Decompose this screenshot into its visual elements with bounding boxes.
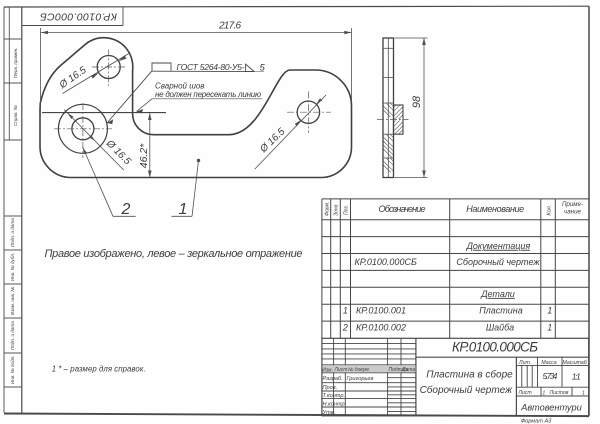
svg-text:Подп. и дата: Подп. и дата [10,218,15,247]
svg-text:Зона: Зона [334,204,340,216]
svg-text:Взам. инв. №: Взам. инв. № [10,287,15,315]
svg-text:1 * – размер для справок.: 1 * – размер для справок. [52,364,146,373]
svg-text:КР.0100.000СБ: КР.0100.000СБ [40,11,117,23]
svg-text:1:1: 1:1 [572,372,581,382]
svg-text:ГОСТ 5264-80-У5-: ГОСТ 5264-80-У5- [177,62,245,72]
svg-text:КР.0100.000СБ: КР.0100.000СБ [452,339,538,354]
svg-text:Справ. №: Справ. № [13,105,18,126]
svg-text:Приме-: Приме- [562,201,583,208]
svg-text:Пластина в сборе: Пластина в сборе [426,369,513,381]
svg-text:Инв. № дубл.: Инв. № дубл. [10,253,15,281]
svg-text:98: 98 [411,95,423,108]
svg-text:Сборочный чертеж: Сборочный чертеж [456,257,540,267]
svg-text:Н.контр.: Н.контр. [323,402,347,408]
svg-text:Правое изображено, левое – зер: Правое изображено, левое – зеркальное от… [45,248,303,260]
svg-text:2: 2 [342,323,348,333]
svg-text:Лист: Лист [334,367,348,373]
svg-text:5: 5 [260,63,266,74]
svg-text:Детали: Детали [480,289,515,299]
svg-text:КР.0100.000СБ: КР.0100.000СБ [355,257,417,267]
svg-text:Т.контр.: Т.контр. [323,393,346,399]
svg-text:1: 1 [547,323,552,333]
svg-text:1: 1 [179,201,188,218]
svg-text:не должен пересекать линию: не должен пересекать линию [155,90,261,99]
svg-text:1: 1 [542,390,545,396]
svg-text:Листов: Листов [549,390,569,396]
svg-text:Перв. примен.: Перв. примен. [13,47,18,78]
svg-text:КР.0100.001: КР.0100.001 [356,306,406,316]
svg-text:Масса: Масса [541,360,556,366]
svg-text:Пластина: Пластина [479,306,523,316]
svg-text:Пров.: Пров. [323,385,338,391]
svg-text:Лист: Лист [517,390,532,396]
svg-text:Подп. и дата: Подп. и дата [10,321,15,350]
svg-text:Дата: Дата [401,367,415,373]
svg-text:Кол.: Кол. [547,205,553,216]
svg-text:чание: чание [564,209,581,216]
svg-text:Изм.: Изм. [322,367,333,373]
svg-text:Лит.: Лит. [518,360,531,366]
svg-text:1: 1 [343,306,348,316]
svg-text:Документация: Документация [466,241,531,251]
svg-text:Шайба: Шайба [486,323,514,333]
svg-text:217.6: 217.6 [218,21,241,32]
svg-text:Поз.: Поз. [344,205,350,215]
svg-text:2: 2 [121,201,131,218]
svg-text:Форм.: Форм. [324,202,330,216]
svg-text:Григорьев: Григорьев [347,376,374,382]
svg-text:Разраб.: Разраб. [323,376,343,382]
svg-text:Сборочный чертеж: Сборочный чертеж [420,384,514,396]
svg-text:Утв.: Утв. [322,410,336,416]
svg-text:Масштаб: Масштаб [562,360,587,366]
svg-text:Обозначение: Обозначение [379,204,426,214]
svg-text:46.2*: 46.2* [138,143,150,168]
svg-text:Автовентури: Автовентури [520,403,582,413]
svg-text:Инв. № подл.: Инв. № подл. [10,355,15,384]
svg-text:5.734: 5.734 [543,371,558,381]
svg-text:1: 1 [582,390,585,396]
svg-text:КР.0100.002: КР.0100.002 [356,323,406,333]
svg-text:1: 1 [547,306,552,316]
svg-text:№ докум.: № докум. [348,367,370,373]
svg-text:Наименование: Наименование [466,204,524,214]
svg-text:Формат А3: Формат А3 [521,419,552,424]
